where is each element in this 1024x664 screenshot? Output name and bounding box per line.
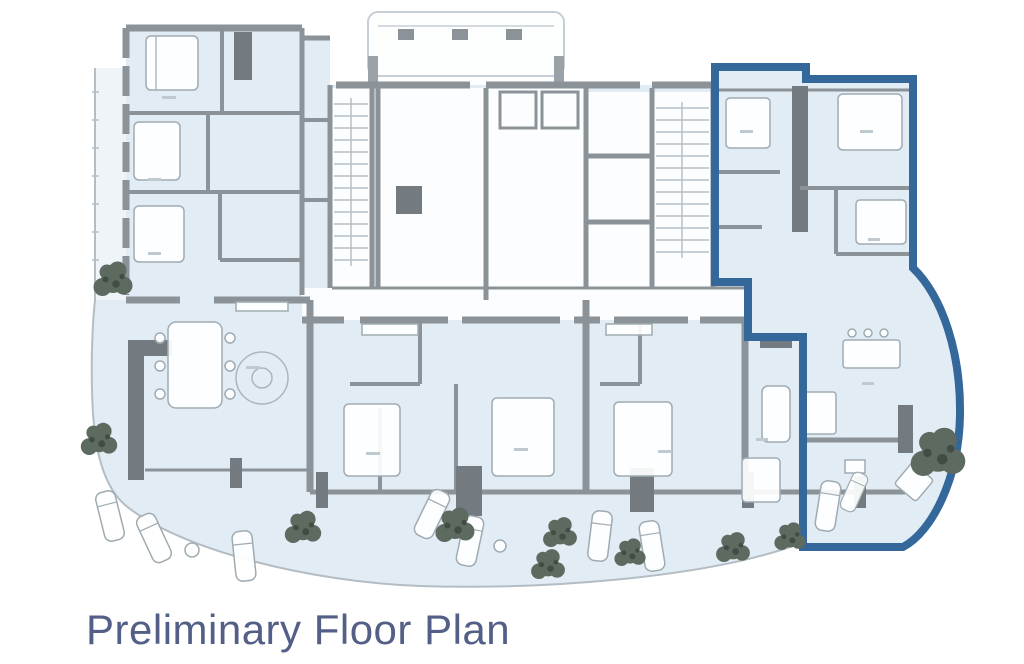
rooftop-structure [368, 12, 564, 84]
floor-plan [0, 0, 1024, 664]
plan-title: Preliminary Floor Plan [86, 606, 510, 654]
floor-plan-page: Preliminary Floor Plan [0, 0, 1024, 664]
floor-plan-drawing [0, 0, 1024, 664]
